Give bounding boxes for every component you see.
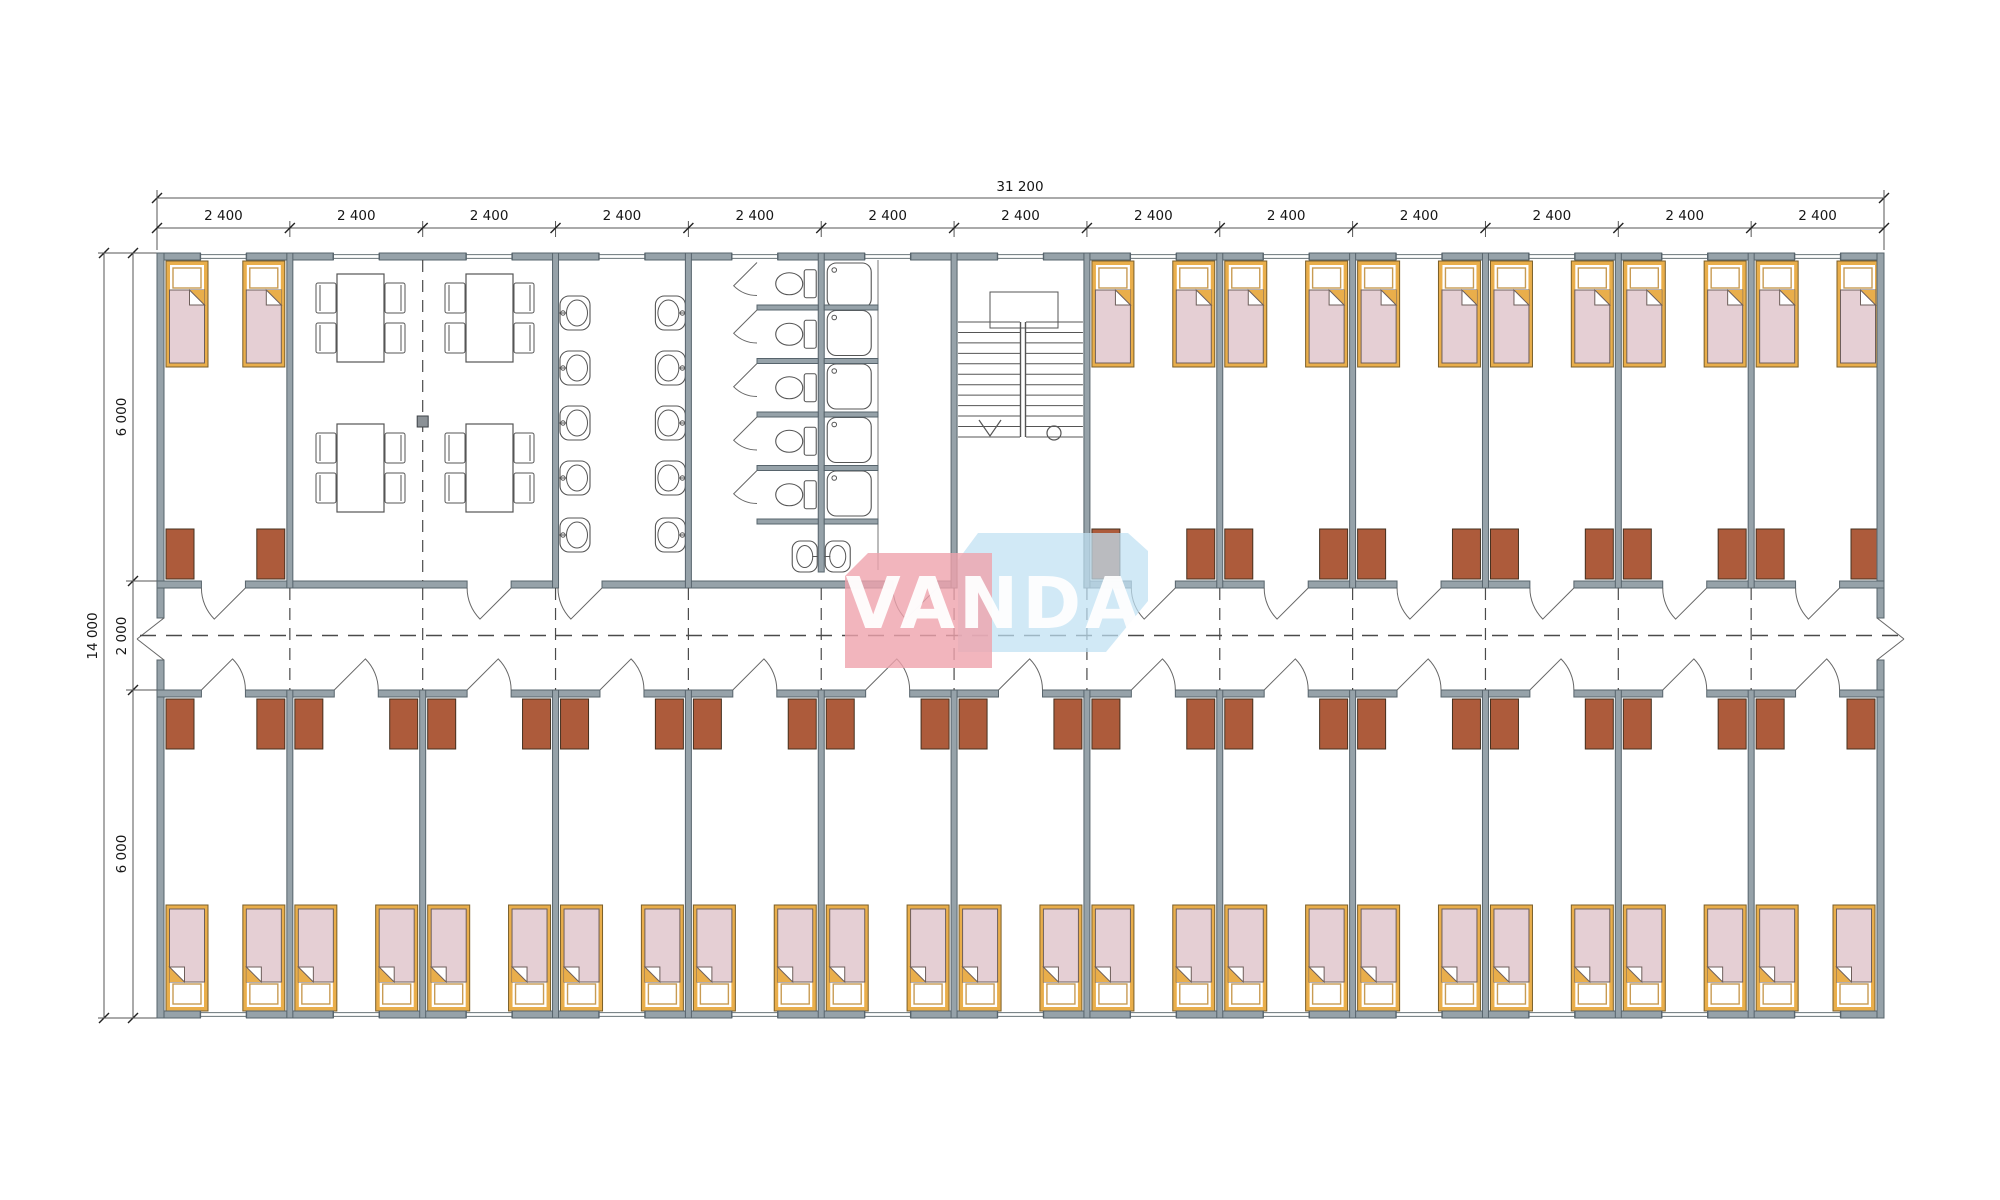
wardrobe-cabinet [166,699,194,749]
chair [316,473,336,503]
wall [287,690,293,1018]
pillow [302,984,330,1004]
toilet [776,320,817,348]
wall [824,519,878,524]
shower-tray [827,418,871,463]
pillow [1578,984,1606,1004]
chair [385,323,405,353]
floor-plan-page: 2 4002 4002 4002 4002 4002 4002 4002 400… [0,0,2000,1200]
bed [1173,905,1215,1011]
toilet [776,270,817,298]
wall [1615,253,1621,588]
wall [157,581,201,588]
wall [157,253,164,618]
bay-dimension-label: 2 400 [470,208,509,224]
wardrobe-cabinet [1452,529,1480,579]
bay-dimension-label: 2 400 [735,208,774,224]
wall [1217,253,1223,588]
chair [385,433,405,463]
chair-seat [385,473,405,503]
door-swing [1264,659,1308,690]
pillow [700,984,728,1004]
wardrobe-cabinet [1718,699,1746,749]
pillow [1232,268,1260,288]
bed [561,905,603,1011]
bed [1623,905,1665,1011]
vanda-logo: VANDA [845,533,1148,668]
door-swing [1131,659,1175,690]
bay-dimension-label: 2 400 [868,208,907,224]
bed [907,905,949,1011]
wardrobe-cabinet [921,699,949,749]
door-swing [734,310,757,343]
door-swing [1264,588,1308,619]
bed [166,905,208,1011]
bed [428,905,470,1011]
chair-seat [445,433,465,463]
pillow [1099,268,1127,288]
wardrobe-cabinet [1358,699,1386,749]
pillow [1711,984,1739,1004]
wall [1350,253,1356,588]
door-swing [558,588,602,619]
wall [511,581,558,588]
chair-seat [316,433,336,463]
chair-seat [514,433,534,463]
wardrobe-cabinet [655,699,683,749]
wall [553,690,559,1018]
wardrobe-cabinet [1320,699,1348,749]
wardrobe-cabinet [1851,529,1879,579]
pillow [1578,268,1606,288]
wardrobe-cabinet [788,699,816,749]
toilet-bowl [776,273,803,295]
pillow [1180,268,1208,288]
pillow [1763,984,1791,1004]
chair [445,323,465,353]
toilet-bowl [776,430,803,452]
bed [1306,261,1348,367]
wardrobe-cabinet [523,699,551,749]
wardrobe-cabinet [1054,699,1082,749]
door-swing [733,659,777,690]
door-swing [734,263,757,296]
pillow [383,984,411,1004]
bay-dimension-label: 2 400 [1533,208,1572,224]
door-swing [1530,588,1574,619]
pillow [1445,268,1473,288]
wall [824,305,878,310]
chair [385,283,405,313]
wall [287,253,293,588]
overall-width-label: 31 200 [996,179,1043,195]
wardrobe-cabinet [295,699,323,749]
wall [420,690,426,1018]
door-swing [1796,588,1840,619]
door-swing [734,417,757,450]
chair-seat [316,283,336,313]
wall [685,690,691,1018]
bed [1704,905,1746,1011]
bed [693,905,735,1011]
bed [1438,905,1480,1011]
wall [1084,690,1090,1018]
bed [1756,261,1798,367]
pillow [568,984,596,1004]
grid-marker [417,416,428,427]
wall [1877,253,1884,618]
wall [553,253,559,588]
overall-height-label: 14 000 [85,612,101,659]
pillow [1047,984,1075,1004]
bay-dimension-label: 2 400 [1267,208,1306,224]
bay-dimension-label: 2 400 [1798,208,1837,224]
wall [1615,690,1621,1018]
wardrobe-cabinet [428,699,456,749]
bed [295,905,337,1011]
wall [951,690,957,1018]
wall [757,305,818,310]
pillow [435,984,463,1004]
bay-dimension-label: 2 400 [1134,208,1173,224]
bay-dimension-label: 2 400 [204,208,243,224]
bed [243,261,285,367]
door-swing [137,618,164,660]
pillow [1840,984,1868,1004]
wardrobe-cabinet [1225,529,1253,579]
chair-seat [445,323,465,353]
wall [1748,253,1754,588]
shower-tray [827,263,871,308]
door-swing [999,659,1043,690]
wall [245,581,467,588]
shower-tray [827,471,871,516]
stair-down-arrow [979,420,1001,436]
shower-tray [827,364,871,409]
bed [1306,905,1348,1011]
wall [1482,253,1488,588]
bay-dimension-label: 2 400 [603,208,642,224]
chair [316,283,336,313]
pillow [250,984,278,1004]
pillow [648,984,676,1004]
door-swing [1877,618,1904,660]
chair [316,433,336,463]
stair-start-marker [1047,426,1061,440]
wardrobe-cabinet [826,699,854,749]
door-swing [201,588,245,619]
chair-seat [385,433,405,463]
wash-basin [655,406,686,440]
pillow [966,984,994,1004]
bed [1438,261,1480,367]
bay-dimension-label: 2 400 [337,208,376,224]
toilet-tank [804,374,816,402]
pillow [250,268,278,288]
pillow [173,984,201,1004]
door-swing [1397,588,1441,619]
wardrobe-cabinet [1187,699,1215,749]
wall [1748,690,1754,1018]
wall [757,466,818,471]
bed [774,905,816,1011]
chair [514,433,534,463]
bed [1571,261,1613,367]
bed [1490,261,1532,367]
bed [959,905,1001,1011]
door-swing [467,588,511,619]
wardrobe-cabinet [959,699,987,749]
pillow [1365,984,1393,1004]
wash-basin [655,296,686,330]
chair-seat [316,323,336,353]
wash-basin [559,296,590,330]
wardrobe-cabinet [1187,529,1215,579]
wash-basin [655,518,686,552]
wall [1840,690,1884,697]
wall [818,253,824,572]
toilet-tank [804,481,816,509]
wardrobe-cabinet [1452,699,1480,749]
wash-basin [559,461,590,495]
door-swing [1530,659,1574,690]
door-swing [600,659,644,690]
shower-tray [827,364,871,409]
bed [1173,261,1215,367]
bed [641,905,683,1011]
wash-basin [559,406,590,440]
staircase [958,292,1083,440]
door-swing [734,471,757,504]
pillow [173,268,201,288]
wash-basin [655,461,686,495]
toilet-bowl [776,377,803,399]
door-swing [1796,659,1840,690]
bed [1571,905,1613,1011]
wall [818,690,824,1018]
chair-seat [514,283,534,313]
dining-table [337,424,384,512]
wardrobe-cabinet [1756,529,1784,579]
wall [685,253,691,588]
pillow [1180,984,1208,1004]
wall [157,690,201,697]
wall [1350,690,1356,1018]
bed [1358,261,1400,367]
chair-seat [514,323,534,353]
wall [824,359,878,364]
wardrobe-cabinet [1092,699,1120,749]
upper-rooms-depth-label: 6 000 [114,398,130,437]
wardrobe-cabinet [166,529,194,579]
bed [1092,261,1134,367]
shower-tray [827,263,871,308]
wash-basin [655,351,686,385]
wall [824,466,878,471]
wardrobe-cabinet [257,699,285,749]
pillow [1497,268,1525,288]
toilet [776,374,817,402]
wash-basin [792,541,818,572]
dining-table [466,424,513,512]
chair [514,473,534,503]
toilet-tank [804,320,816,348]
shower-tray [827,471,871,516]
bed [509,905,551,1011]
chair-seat [445,283,465,313]
toilet-tank [804,427,816,455]
door-swing [467,659,511,690]
lower-rooms-depth-label: 6 000 [114,835,130,874]
bed [1225,905,1267,1011]
wash-basin [559,518,590,552]
dining-table [466,274,513,362]
pillow [1099,984,1127,1004]
wardrobe-cabinet [1490,529,1518,579]
wardrobe-cabinet [1585,529,1613,579]
door-swing [201,659,245,690]
chair [445,283,465,313]
chair [385,473,405,503]
floor-plan: 2 4002 4002 4002 4002 4002 4002 4002 400… [0,0,2000,1200]
chair-seat [514,473,534,503]
toilet-bowl [776,323,803,345]
bed [1225,261,1267,367]
chair-seat [385,323,405,353]
bed [1358,905,1400,1011]
bed [1040,905,1082,1011]
toilet-tank [804,270,816,298]
pillow [781,984,809,1004]
door-swing [1663,588,1707,619]
pillow [1313,984,1341,1004]
pillow [1365,268,1393,288]
bay-dimension-label: 2 400 [1001,208,1040,224]
pillow [1711,268,1739,288]
door-swing [734,364,757,397]
chair-seat [385,283,405,313]
pillow [1844,268,1872,288]
pillow [1630,268,1658,288]
bed [166,261,208,367]
wall [1482,690,1488,1018]
wardrobe-cabinet [1847,699,1875,749]
door-swing [334,659,378,690]
wardrobe-cabinet [257,529,285,579]
chair [514,323,534,353]
toilet-bowl [776,484,803,506]
bed [1833,905,1875,1011]
wardrobe-cabinet [1320,529,1348,579]
wall [157,660,164,1018]
pillow [1497,984,1525,1004]
chair [514,283,534,313]
logo-wordmark: VANDA [846,562,1144,645]
pillow [1232,984,1260,1004]
bed [243,905,285,1011]
wall [757,412,818,417]
shower-tray [827,418,871,463]
wardrobe-cabinet [1358,529,1386,579]
shower-tray [827,311,871,356]
bed [376,905,418,1011]
wardrobe-cabinet [1756,699,1784,749]
pillow [1763,268,1791,288]
wardrobe-cabinet [1585,699,1613,749]
door-swing [1397,659,1441,690]
door-swing [1663,659,1707,690]
wash-basin [559,351,590,385]
shower-tray [827,311,871,356]
corridor-width-label: 2 000 [114,617,130,656]
pillow [516,984,544,1004]
pillow [914,984,942,1004]
bed [1837,261,1879,367]
toilet [776,427,817,455]
bed [1092,905,1134,1011]
bed [826,905,868,1011]
wall [757,359,818,364]
pillow [1445,984,1473,1004]
chair [445,433,465,463]
toilet [776,481,817,509]
bed [1756,905,1798,1011]
wardrobe-cabinet [693,699,721,749]
wardrobe-cabinet [1623,699,1651,749]
dining-table [337,274,384,362]
wardrobe-cabinet [1225,699,1253,749]
bed [1704,261,1746,367]
chair-seat [445,473,465,503]
stair-landing [990,292,1058,328]
wall [1217,690,1223,1018]
wall [1877,660,1884,1018]
bay-dimension-label: 2 400 [1665,208,1704,224]
wardrobe-cabinet [1718,529,1746,579]
chair-seat [316,473,336,503]
wall [757,519,818,524]
chair [445,473,465,503]
bed [1490,905,1532,1011]
wall [1840,581,1884,588]
wall [824,412,878,417]
wardrobe-cabinet [390,699,418,749]
wardrobe-cabinet [561,699,589,749]
bed [1623,261,1665,367]
wall [379,253,466,260]
pillow [833,984,861,1004]
wall [951,253,957,588]
pillow [1630,984,1658,1004]
wardrobe-cabinet [1623,529,1651,579]
bay-dimension-label: 2 400 [1400,208,1439,224]
wardrobe-cabinet [1490,699,1518,749]
chair [316,323,336,353]
pillow [1313,268,1341,288]
